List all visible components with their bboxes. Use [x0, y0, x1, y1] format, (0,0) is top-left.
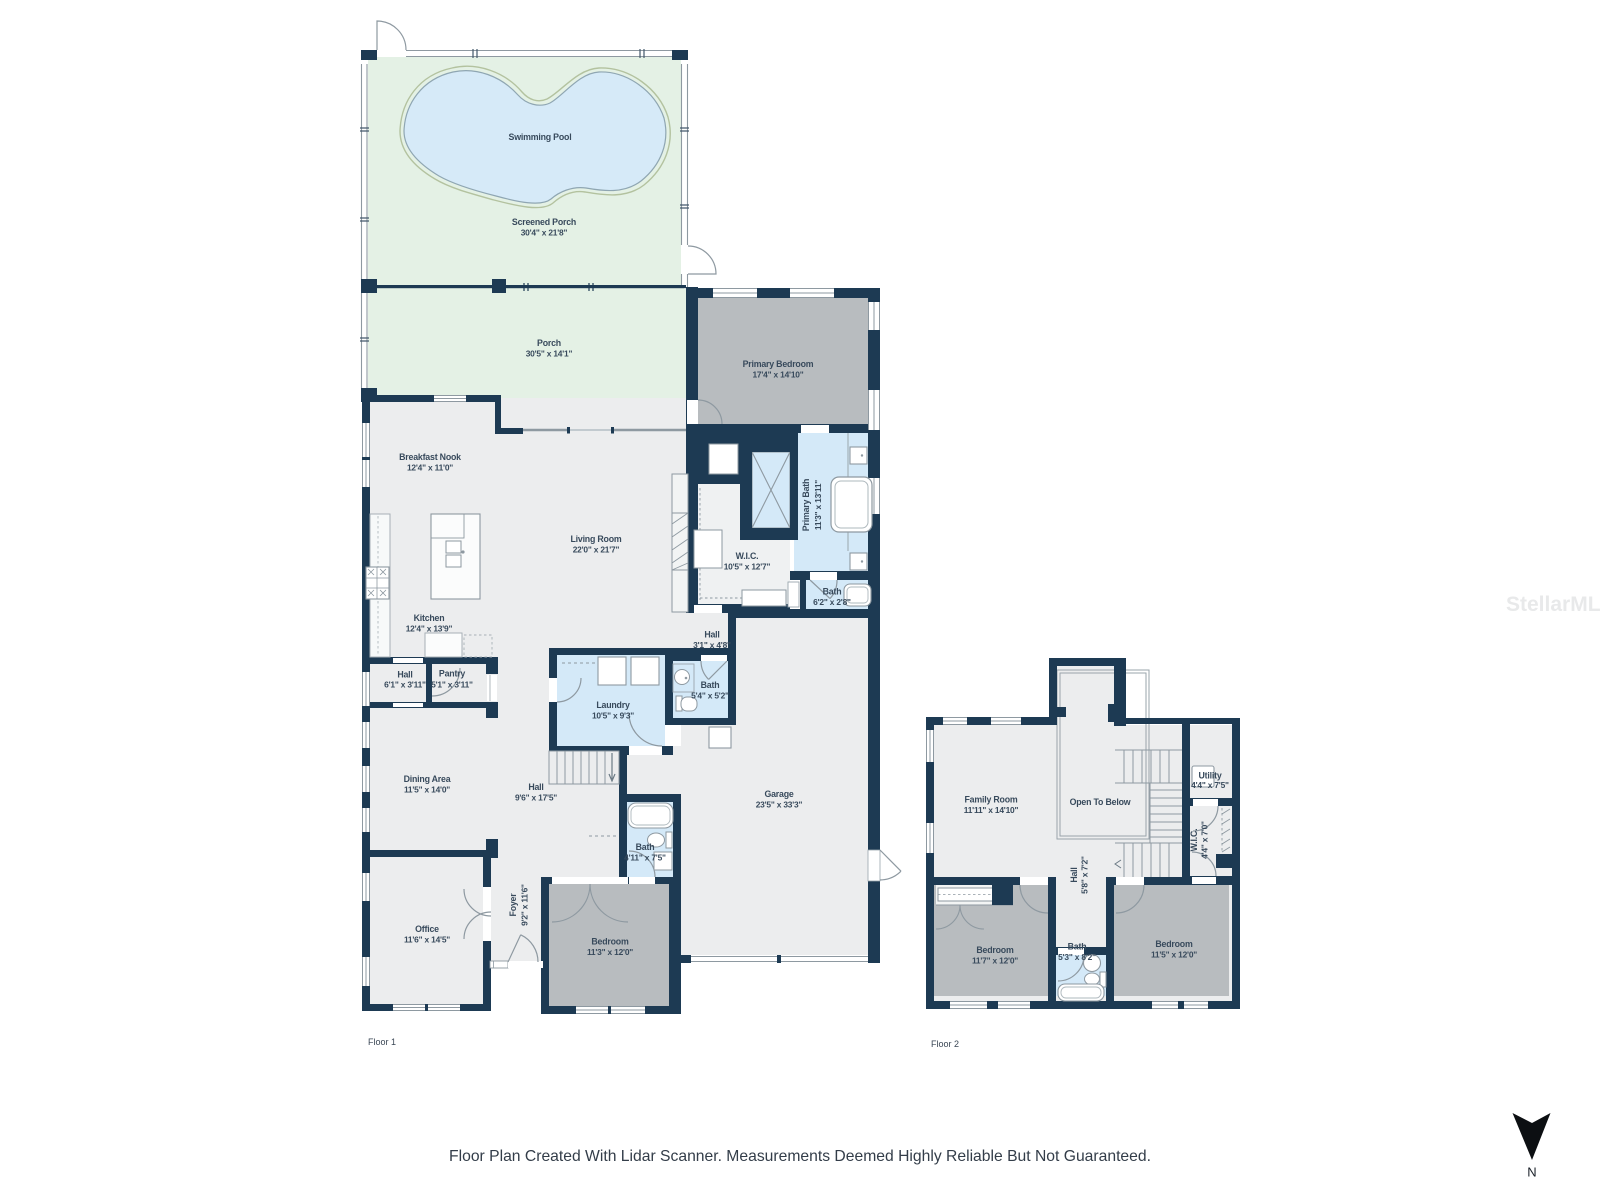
- svg-text:30'4" x 21'8": 30'4" x 21'8": [521, 228, 568, 238]
- svg-text:3'1" x 4'8": 3'1" x 4'8": [693, 640, 731, 650]
- svg-text:Porch: Porch: [537, 338, 561, 348]
- svg-text:Dining Area: Dining Area: [404, 774, 451, 784]
- svg-text:Open To Below: Open To Below: [1070, 797, 1131, 807]
- svg-text:Bath: Bath: [701, 680, 720, 690]
- svg-text:5'4" x 5'2": 5'4" x 5'2": [691, 690, 729, 700]
- svg-text:Primary Bath: Primary Bath: [801, 479, 811, 531]
- svg-text:Pantry: Pantry: [439, 669, 465, 679]
- svg-text:Primary Bedroom: Primary Bedroom: [743, 359, 814, 369]
- svg-text:4'4" x 7'0": 4'4" x 7'0": [1200, 821, 1210, 859]
- svg-text:Floor 2: Floor 2: [931, 1039, 959, 1049]
- svg-text:Bedroom: Bedroom: [591, 937, 629, 947]
- svg-text:4'11" x 7'5": 4'11" x 7'5": [624, 852, 666, 862]
- svg-text:StellarMLS: StellarMLS: [1506, 593, 1600, 616]
- svg-text:12'4" x 11'0": 12'4" x 11'0": [407, 462, 453, 472]
- svg-text:N: N: [1527, 1165, 1536, 1180]
- svg-text:23'5" x 33'3": 23'5" x 33'3": [756, 799, 803, 809]
- svg-text:9'6" x 17'5": 9'6" x 17'5": [515, 792, 557, 802]
- svg-text:Floor Plan Created With Lidar: Floor Plan Created With Lidar Scanner. M…: [449, 1148, 1151, 1165]
- svg-text:10'5" x 9'3": 10'5" x 9'3": [592, 710, 634, 720]
- svg-text:W.I.C.: W.I.C.: [1189, 829, 1199, 852]
- svg-text:11'3" x 13'11": 11'3" x 13'11": [813, 480, 823, 530]
- svg-text:11'3" x 12'0": 11'3" x 12'0": [587, 947, 633, 957]
- svg-text:30'5" x 14'1": 30'5" x 14'1": [526, 349, 573, 359]
- svg-text:W.I.C.: W.I.C.: [736, 551, 759, 561]
- svg-text:12'4" x 13'9": 12'4" x 13'9": [406, 623, 453, 633]
- svg-text:5'8" x 7'2": 5'8" x 7'2": [1080, 856, 1090, 894]
- svg-text:Floor 1: Floor 1: [368, 1037, 396, 1047]
- svg-text:4'4" x 7'5": 4'4" x 7'5": [1191, 780, 1229, 790]
- svg-text:Bath: Bath: [1068, 942, 1087, 952]
- svg-text:Screened Porch: Screened Porch: [512, 217, 576, 227]
- svg-text:Garage: Garage: [764, 789, 793, 799]
- svg-text:6'2" x 2'8": 6'2" x 2'8": [813, 597, 851, 607]
- svg-text:Family Room: Family Room: [964, 794, 1017, 804]
- svg-text:Foyer: Foyer: [508, 893, 518, 917]
- svg-text:Living Room: Living Room: [570, 534, 621, 544]
- svg-text:9'2" x 11'6": 9'2" x 11'6": [520, 884, 530, 926]
- svg-text:11'5" x 12'0": 11'5" x 12'0": [1151, 949, 1197, 959]
- svg-text:6'1" x 3'11": 6'1" x 3'11": [384, 680, 426, 690]
- svg-text:11'5" x 14'0": 11'5" x 14'0": [404, 784, 450, 794]
- svg-text:Hall: Hall: [397, 669, 412, 679]
- svg-text:Bath: Bath: [823, 587, 842, 597]
- svg-text:11'11" x 14'10": 11'11" x 14'10": [964, 805, 1019, 815]
- svg-text:Hall: Hall: [704, 630, 719, 640]
- svg-text:Kitchen: Kitchen: [414, 613, 445, 623]
- svg-text:Hall: Hall: [1069, 867, 1079, 882]
- svg-text:Laundry: Laundry: [596, 700, 630, 710]
- svg-text:Utility: Utility: [1198, 770, 1221, 780]
- svg-text:Hall: Hall: [528, 782, 543, 792]
- svg-text:Bedroom: Bedroom: [1155, 939, 1193, 949]
- svg-text:11'6" x 14'5": 11'6" x 14'5": [404, 934, 450, 944]
- svg-text:Breakfast Nook: Breakfast Nook: [399, 452, 461, 462]
- svg-text:10'5" x 12'7": 10'5" x 12'7": [724, 561, 771, 571]
- svg-text:17'4" x 14'10": 17'4" x 14'10": [752, 369, 803, 379]
- svg-text:Bedroom: Bedroom: [976, 945, 1014, 955]
- svg-text:Bath: Bath: [636, 842, 655, 852]
- svg-text:22'0" x 21'7": 22'0" x 21'7": [573, 544, 620, 554]
- svg-text:Office: Office: [415, 924, 439, 934]
- svg-text:5'1" x 3'11": 5'1" x 3'11": [431, 680, 473, 690]
- svg-text:Swimming Pool: Swimming Pool: [509, 132, 572, 142]
- svg-text:5'3" x 8'2": 5'3" x 8'2": [1058, 952, 1096, 962]
- svg-text:11'7" x 12'0": 11'7" x 12'0": [972, 955, 1018, 965]
